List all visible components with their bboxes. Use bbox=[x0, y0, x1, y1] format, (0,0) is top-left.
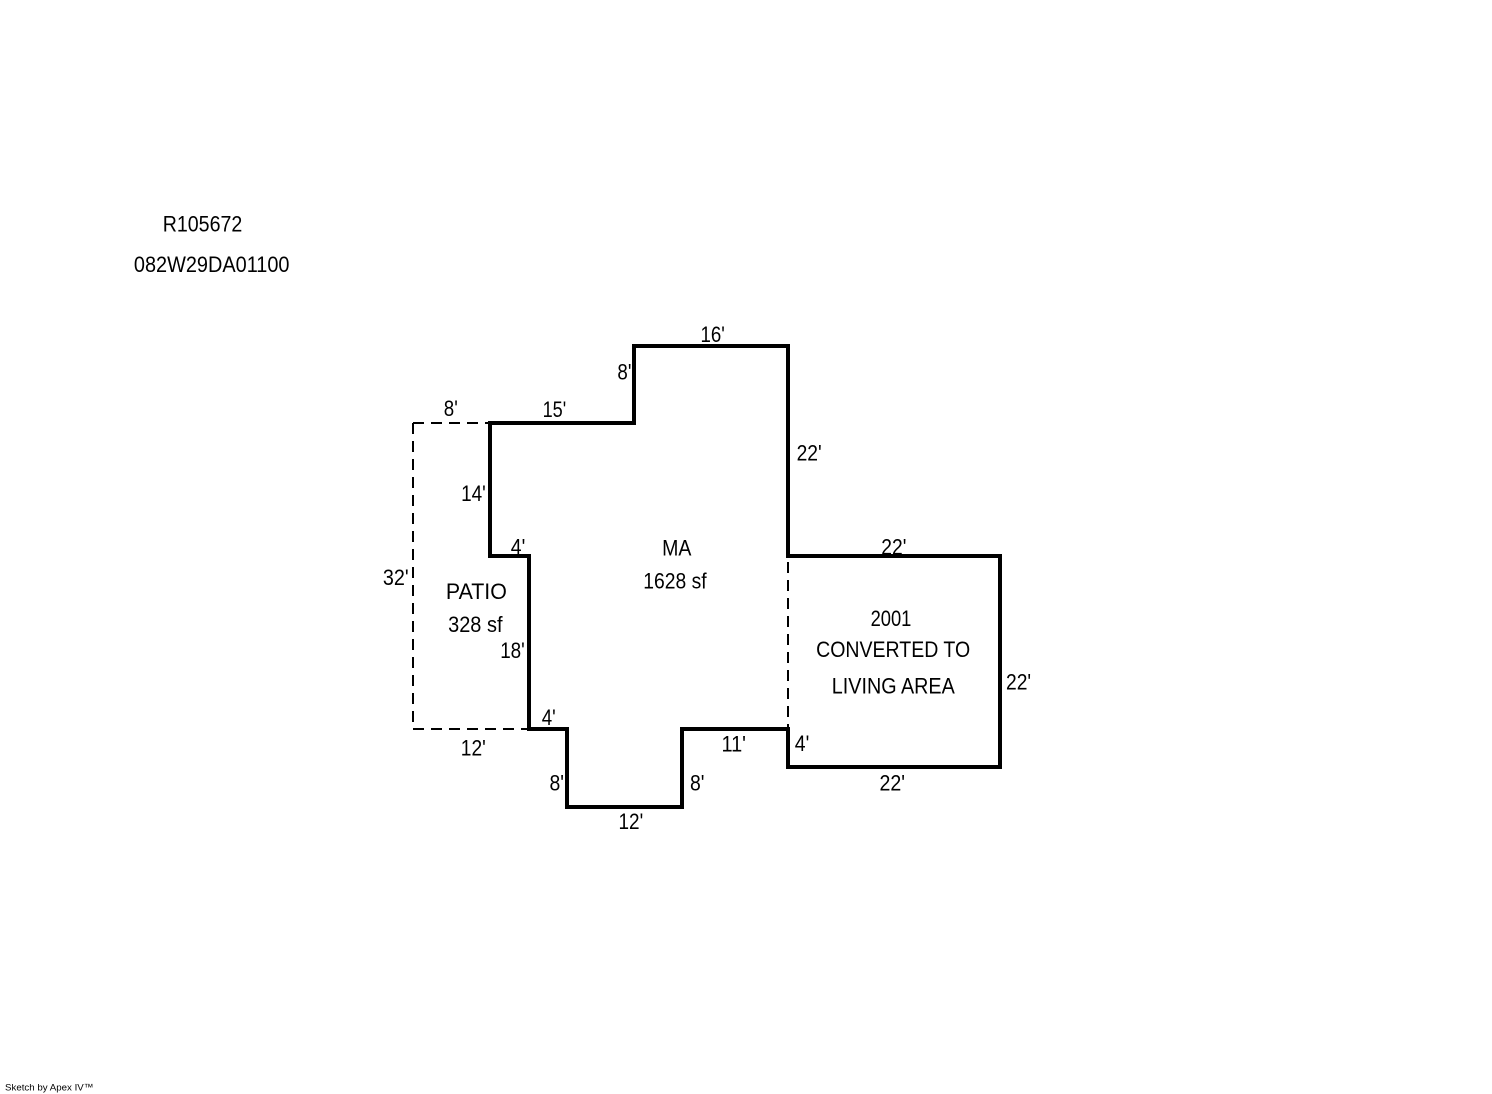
svg-text:082W29DA01100: 082W29DA01100 bbox=[134, 252, 290, 277]
svg-text:32': 32' bbox=[383, 565, 409, 590]
svg-text:8': 8' bbox=[444, 396, 458, 421]
svg-text:Sketch by Apex IV™: Sketch by Apex IV™ bbox=[5, 1083, 94, 1094]
svg-text:22': 22' bbox=[880, 770, 906, 795]
svg-text:328 sf: 328 sf bbox=[448, 612, 503, 637]
svg-text:2001: 2001 bbox=[871, 606, 912, 631]
svg-text:1628 sf: 1628 sf bbox=[643, 569, 707, 594]
svg-text:18': 18' bbox=[500, 638, 525, 663]
svg-text:11': 11' bbox=[722, 732, 747, 757]
svg-text:12': 12' bbox=[461, 736, 486, 761]
svg-text:15': 15' bbox=[543, 397, 567, 422]
svg-text:4': 4' bbox=[795, 731, 810, 756]
svg-text:22': 22' bbox=[1006, 670, 1031, 695]
svg-text:22': 22' bbox=[797, 440, 822, 465]
svg-text:8': 8' bbox=[690, 770, 705, 795]
svg-text:MA: MA bbox=[662, 536, 692, 561]
svg-text:R105672: R105672 bbox=[163, 212, 243, 237]
svg-text:16': 16' bbox=[701, 322, 725, 347]
svg-text:LIVING AREA: LIVING AREA bbox=[832, 674, 955, 699]
svg-text:8': 8' bbox=[617, 360, 631, 385]
svg-text:12': 12' bbox=[619, 809, 644, 834]
svg-text:CONVERTED TO: CONVERTED TO bbox=[816, 637, 970, 662]
svg-text:14': 14' bbox=[461, 481, 486, 506]
svg-text:4': 4' bbox=[511, 535, 526, 560]
svg-text:22': 22' bbox=[881, 535, 906, 560]
svg-text:PATIO: PATIO bbox=[446, 579, 507, 604]
svg-text:4': 4' bbox=[542, 705, 556, 730]
svg-text:8': 8' bbox=[550, 770, 565, 795]
